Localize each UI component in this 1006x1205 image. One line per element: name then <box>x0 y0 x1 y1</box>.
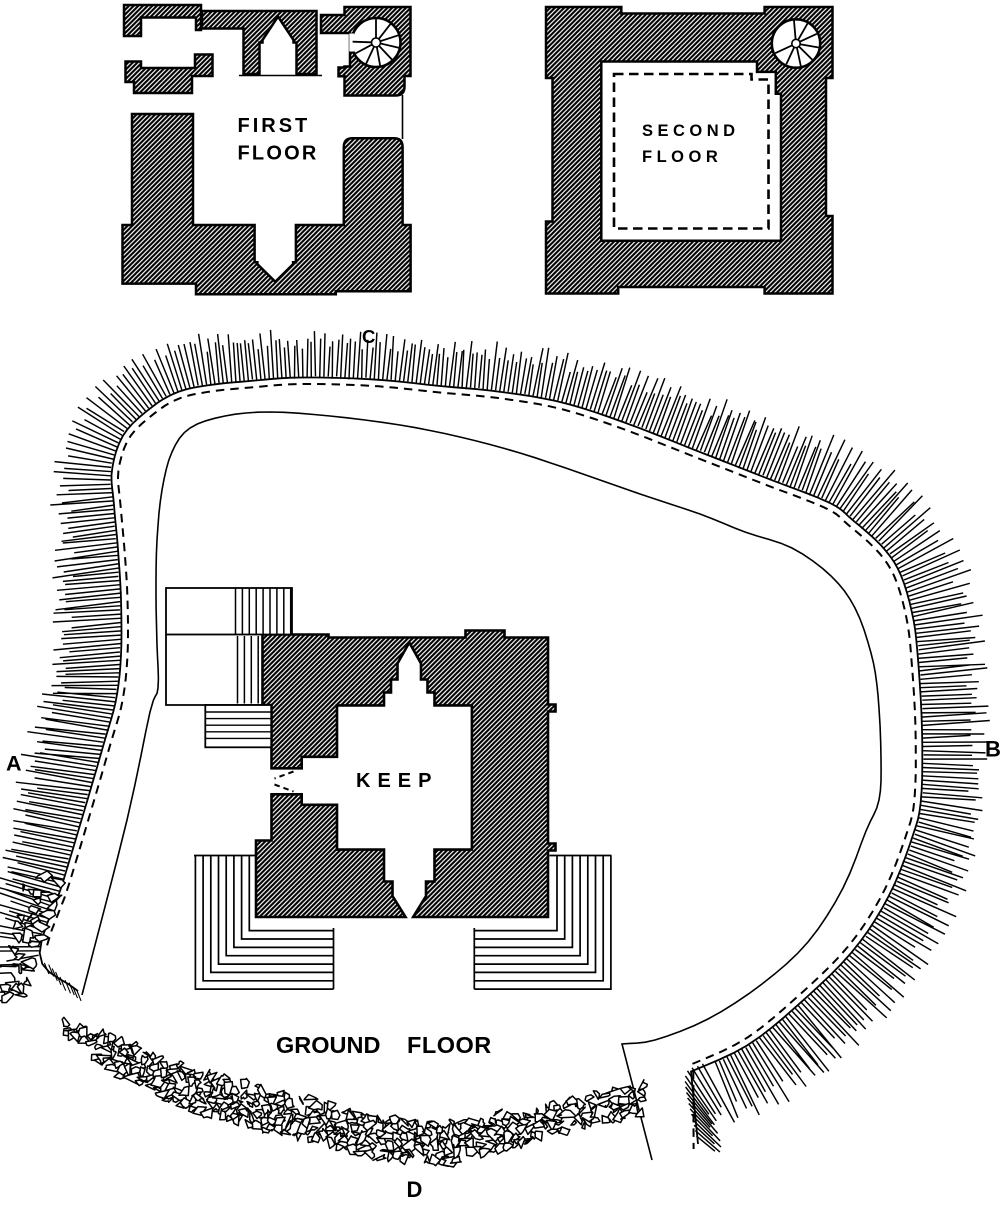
svg-text:D: D <box>407 1177 423 1200</box>
svg-text:FIRST: FIRST <box>238 115 311 137</box>
svg-text:KEEP: KEEP <box>356 770 438 792</box>
svg-text:B: B <box>985 737 1001 762</box>
svg-text:A: A <box>6 752 22 776</box>
svg-text:FLOOR: FLOOR <box>642 148 722 166</box>
svg-text:SECOND: SECOND <box>642 122 740 140</box>
svg-text:GROUND: GROUND <box>276 1032 380 1058</box>
svg-text:FLOOR: FLOOR <box>238 143 319 165</box>
svg-text:C: C <box>362 326 375 347</box>
svg-text:FLOOR: FLOOR <box>407 1032 492 1058</box>
